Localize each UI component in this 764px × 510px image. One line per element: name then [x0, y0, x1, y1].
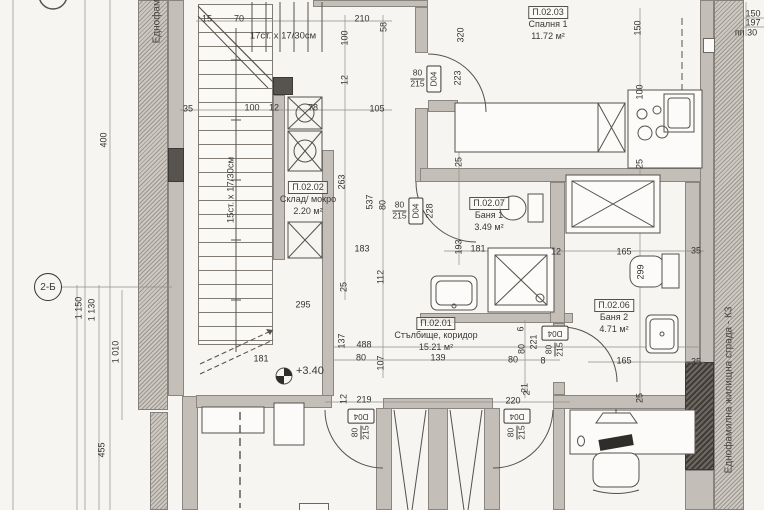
- dimension-label: 12: [341, 75, 350, 85]
- dimension-label: 25: [636, 393, 645, 403]
- door-size: 80215: [410, 69, 424, 90]
- dimension-label: 105: [369, 105, 384, 114]
- room-id: П.02.02: [288, 181, 328, 194]
- room-label-bath1: П.02.07 Баня 1 3.49 м²: [469, 197, 509, 233]
- room-area: 15.21 м²: [419, 342, 453, 352]
- dimension-label: 165: [616, 248, 631, 257]
- dimension-label: 100: [244, 104, 259, 113]
- dimension-label: 1 150: [75, 297, 84, 320]
- dimension-label: 197: [745, 19, 760, 28]
- dimension-label: 107: [377, 355, 386, 370]
- dimension-label: 137: [338, 333, 347, 348]
- dimension-label: 80: [508, 356, 518, 365]
- dimension-label: 210: [354, 15, 369, 24]
- room-label-partial: [299, 503, 329, 510]
- stair-label-upper: 17ст. х 17/30см: [250, 31, 316, 42]
- dimension-label: 80: [518, 344, 527, 354]
- dimension-label: пп 30: [735, 29, 757, 38]
- dimension-label: 223: [454, 70, 463, 85]
- door-size: 80215: [507, 425, 528, 439]
- dimension-label: 299: [637, 264, 646, 279]
- vent-shafts: [394, 410, 482, 510]
- dimension-label: 455: [98, 442, 107, 457]
- door-tag-bottom-right: 80215 D04: [504, 408, 531, 439]
- dimension-label: 25: [455, 157, 464, 167]
- door-tag-bath1: 80215 D04: [392, 198, 423, 225]
- door-tag-bath2: 80215 D04: [542, 325, 569, 356]
- door-tag-bedroom: 80215 D04: [410, 66, 441, 93]
- dimension-label: 80: [379, 200, 388, 210]
- door-code-box: D04: [348, 408, 375, 423]
- bed-bottom-left: [202, 403, 304, 508]
- dimension-label: 112: [377, 270, 386, 284]
- site-label-right: Еднофамилна жилищна сграда - К3: [724, 307, 735, 474]
- room-id: П.02.07: [469, 197, 509, 210]
- dimension-label: 1 130: [88, 299, 97, 322]
- floor-plan-sheet: 2-Б Еднофамилна Еднофамилна жилищна сгра…: [0, 0, 764, 510]
- room-name: Стълбище, коридор: [394, 330, 477, 340]
- room-name: Склад/ мокро: [280, 194, 336, 204]
- dimension-label: 80: [356, 354, 366, 363]
- door-code-box: D04: [542, 325, 569, 340]
- dimension-label: 165: [616, 357, 631, 366]
- level-annotation: +3.40: [296, 365, 324, 377]
- dimension-label: 219: [356, 396, 371, 405]
- dimension-label: 220: [505, 397, 520, 406]
- room-label-bath2: П.02.06 Баня 2 4.71 м²: [594, 299, 634, 335]
- dimension-label: 12: [551, 248, 561, 257]
- room-label-storage: П.02.02 Склад/ мокро 2.20 м²: [280, 181, 336, 217]
- dimension-label: 35: [691, 358, 701, 367]
- door-size: 80215: [545, 342, 566, 356]
- dimension-label: 35: [691, 247, 701, 256]
- dimension-label: 8: [540, 357, 545, 366]
- dimension-label: 221: [530, 334, 539, 349]
- dimension-label: 320: [457, 27, 466, 42]
- dimension-label: 58: [380, 22, 389, 32]
- grid-bubble-2b: 2-Б: [34, 273, 62, 301]
- dimension-label: 181: [470, 245, 485, 254]
- desk-and-chair: [570, 409, 695, 494]
- room-label-hall: П.02.01 Стълбище, коридор 15.21 м²: [394, 317, 477, 353]
- door-size: 80215: [392, 201, 406, 222]
- door-code-box: D04: [409, 198, 424, 225]
- room-name: Спалня 1: [529, 19, 568, 29]
- dimension-label: 70: [234, 15, 244, 24]
- dimension-label: 6: [517, 326, 526, 331]
- grid-row-label: 2-Б: [40, 282, 55, 293]
- door-size: 80215: [351, 425, 372, 439]
- grid-bubble-top-partial: [39, 0, 67, 9]
- shaft-boxes: [288, 97, 322, 258]
- room-area: 2.20 м²: [293, 206, 322, 216]
- room-area: 4.71 м²: [599, 324, 628, 334]
- dimension-label: 25: [636, 159, 645, 169]
- dimension-label: 263: [338, 174, 347, 189]
- door-tag-bottom-left: 80215 D04: [348, 408, 375, 439]
- site-label-left: Еднофамилна: [152, 0, 163, 43]
- room-id: П.02.03: [528, 6, 568, 19]
- dimension-label: 1 010: [112, 341, 121, 364]
- dimension-label: 183: [354, 245, 369, 254]
- dimension-label: 12: [340, 394, 349, 404]
- dimension-label: 295: [295, 301, 310, 310]
- dimension-label: 78: [308, 104, 318, 113]
- level-marker-icon: [276, 368, 292, 384]
- kitchen-counter: [628, 90, 702, 168]
- dimension-label: 139: [430, 354, 445, 363]
- room-area: 11.72 м²: [531, 31, 565, 41]
- dimension-label: 2: [523, 390, 532, 395]
- room-id: П.02.01: [416, 317, 456, 330]
- dimension-label: 228: [426, 203, 435, 218]
- dimension-label: 15: [202, 15, 212, 24]
- room-area: 3.49 м²: [474, 222, 503, 232]
- dimension-label: 181: [253, 355, 268, 364]
- dimension-label: 400: [100, 132, 109, 147]
- room-label-bedroom1: П.02.03 Спалня 1 11.72 м²: [528, 6, 568, 42]
- door-code-box: D04: [504, 408, 531, 423]
- dimension-label: 25: [340, 282, 349, 292]
- room-name: Баня 1: [475, 210, 503, 220]
- dimension-label: 150: [634, 20, 643, 35]
- dimension-label: 12: [269, 104, 279, 113]
- plan-linework: [0, 0, 764, 510]
- dimension-label: 193: [455, 239, 464, 254]
- dimension-label: 100: [341, 30, 350, 45]
- dimension-label: 537: [366, 194, 375, 209]
- door-code-box: D04: [427, 66, 442, 93]
- dimension-label: 35: [183, 105, 193, 114]
- dimension-label: 488: [356, 341, 371, 350]
- room-id: П.02.06: [594, 299, 634, 312]
- dimension-label: 100: [636, 84, 645, 99]
- stair-label-lower: 15ст. х 17/30см: [226, 157, 237, 223]
- room-name: Баня 2: [600, 312, 628, 322]
